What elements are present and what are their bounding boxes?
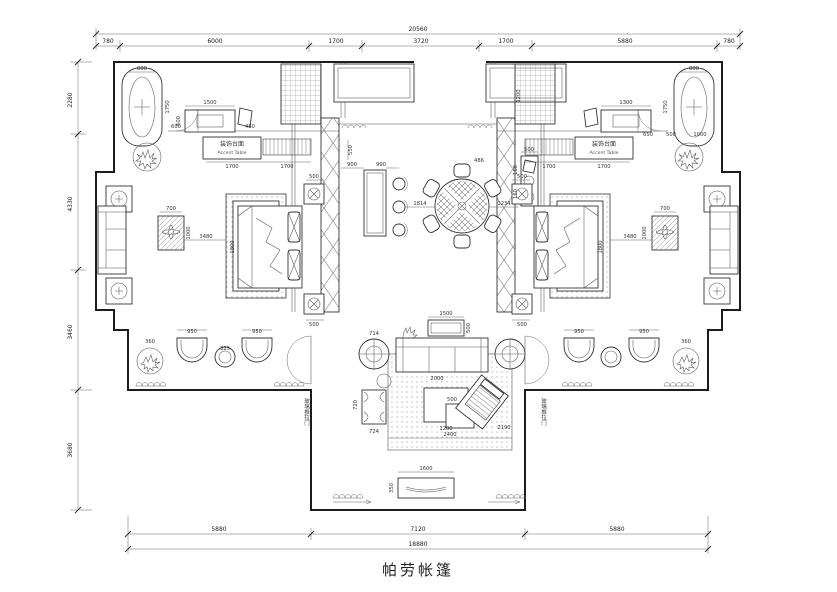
radiator-hall-top bbox=[342, 125, 492, 128]
armchair-right-1 bbox=[564, 338, 594, 362]
radiator-left-room bbox=[136, 383, 304, 386]
svg-text:1814: 1814 bbox=[413, 201, 427, 207]
svg-text:700: 700 bbox=[660, 206, 670, 212]
sliding-door-label-right: 玻璃推拉门 bbox=[540, 397, 547, 427]
bathtub-left bbox=[122, 68, 162, 146]
svg-text:1700: 1700 bbox=[597, 164, 610, 170]
top-closet-left bbox=[334, 64, 414, 102]
double-door-right bbox=[525, 336, 549, 384]
side-table-right bbox=[601, 347, 621, 367]
svg-text:3460: 3460 bbox=[67, 324, 74, 339]
svg-text:Accent Table: Accent Table bbox=[590, 150, 619, 156]
svg-text:1000: 1000 bbox=[186, 226, 192, 239]
svg-text:720: 720 bbox=[353, 400, 359, 410]
armchair-right-2 bbox=[629, 338, 659, 362]
svg-text:1700: 1700 bbox=[542, 164, 555, 170]
nightstand-left-bottom bbox=[304, 294, 324, 314]
end-table-left bbox=[359, 339, 389, 369]
svg-text:500: 500 bbox=[309, 322, 319, 328]
svg-text:780: 780 bbox=[102, 38, 114, 45]
coffee-table-right bbox=[652, 216, 678, 250]
drawing-title: 帕劳帐篷 bbox=[382, 561, 454, 579]
lattice-screen-left bbox=[321, 118, 339, 312]
svg-text:1800: 1800 bbox=[230, 240, 236, 253]
svg-text:500: 500 bbox=[666, 132, 676, 138]
plant-right-bottom bbox=[673, 348, 699, 374]
svg-text:950: 950 bbox=[639, 329, 649, 335]
svg-text:1500: 1500 bbox=[439, 311, 452, 317]
svg-text:Accent Table: Accent Table bbox=[218, 150, 247, 156]
svg-text:990: 990 bbox=[376, 162, 386, 168]
svg-text:1500: 1500 bbox=[203, 100, 216, 106]
svg-text:500: 500 bbox=[524, 147, 534, 153]
radiator-bottom-left bbox=[333, 495, 371, 504]
svg-text:3680: 3680 bbox=[67, 442, 74, 457]
bar-counter bbox=[364, 170, 386, 236]
svg-text:2000: 2000 bbox=[430, 376, 443, 382]
svg-text:5880: 5880 bbox=[609, 526, 624, 533]
radiator-bottom-right bbox=[488, 495, 526, 504]
dimension-chain-top: 20560 780 6000 1700 3720 1700 5880 780 bbox=[93, 26, 743, 52]
svg-text:500: 500 bbox=[517, 322, 527, 328]
svg-text:700: 700 bbox=[166, 206, 176, 212]
tv-console bbox=[398, 478, 454, 498]
svg-text:1700: 1700 bbox=[280, 164, 293, 170]
svg-text:1700: 1700 bbox=[328, 38, 343, 45]
plant-left-top bbox=[133, 143, 161, 171]
armchair-left-2 bbox=[242, 338, 272, 362]
coffee-table-left bbox=[158, 216, 184, 250]
svg-text:900: 900 bbox=[347, 162, 357, 168]
svg-text:1234: 1234 bbox=[497, 201, 511, 207]
wall-fixture-right-2 bbox=[704, 278, 730, 304]
dining-table bbox=[430, 174, 494, 238]
sliding-door-label-left: 玻璃推拉门 bbox=[303, 397, 310, 427]
svg-text:486: 486 bbox=[474, 158, 484, 164]
bench-stool bbox=[362, 374, 391, 424]
svg-text:20560: 20560 bbox=[408, 26, 427, 33]
armchair-left-1 bbox=[177, 338, 207, 362]
svg-text:7120: 7120 bbox=[410, 526, 425, 533]
svg-text:360: 360 bbox=[145, 339, 155, 345]
svg-text:1000: 1000 bbox=[642, 226, 648, 239]
svg-text:950: 950 bbox=[252, 329, 262, 335]
sofa-left-wing bbox=[98, 206, 126, 274]
svg-text:450: 450 bbox=[245, 124, 255, 130]
svg-text:3480: 3480 bbox=[199, 234, 212, 240]
plant-right-top bbox=[675, 143, 703, 171]
wall-fixture-left-2 bbox=[106, 278, 132, 304]
svg-text:350: 350 bbox=[389, 483, 395, 493]
svg-text:950: 950 bbox=[574, 329, 584, 335]
bed-left bbox=[226, 194, 302, 298]
sofa-right-wing bbox=[710, 206, 738, 274]
svg-text:5880: 5880 bbox=[617, 38, 632, 45]
svg-text:装饰台面: 装饰台面 bbox=[592, 140, 616, 148]
svg-text:3720: 3720 bbox=[413, 38, 428, 45]
svg-text:1000: 1000 bbox=[693, 132, 706, 138]
svg-text:650: 650 bbox=[643, 132, 653, 138]
svg-text:1200: 1200 bbox=[516, 89, 522, 102]
svg-text:550: 550 bbox=[348, 145, 354, 155]
svg-text:500: 500 bbox=[447, 397, 457, 403]
svg-text:18880: 18880 bbox=[408, 541, 427, 548]
svg-text:500: 500 bbox=[517, 174, 527, 180]
svg-text:2400: 2400 bbox=[443, 432, 456, 438]
svg-text:5880: 5880 bbox=[211, 526, 226, 533]
console-behind-sofa bbox=[428, 320, 464, 336]
svg-text:600: 600 bbox=[171, 124, 181, 130]
sofa-living bbox=[396, 338, 488, 372]
svg-text:714: 714 bbox=[369, 331, 380, 337]
radiator-right-room bbox=[562, 383, 694, 386]
svg-text:1800: 1800 bbox=[598, 240, 604, 253]
double-door-left bbox=[287, 336, 311, 384]
svg-text:724: 724 bbox=[369, 429, 380, 435]
svg-text:325: 325 bbox=[220, 346, 230, 352]
floor-plan-sheet: 装饰台面 Accent Table bbox=[0, 0, 837, 592]
svg-text:950: 950 bbox=[187, 329, 197, 335]
svg-text:800: 800 bbox=[689, 66, 699, 72]
dimension-chain-left: 2280 4330 3460 3680 bbox=[67, 59, 92, 513]
end-table-right bbox=[495, 339, 525, 369]
floor-plan-drawing: 装饰台面 Accent Table bbox=[0, 0, 837, 592]
svg-text:2190: 2190 bbox=[497, 425, 510, 431]
svg-text:800: 800 bbox=[137, 66, 147, 72]
nightstand-right-bottom bbox=[512, 294, 532, 314]
svg-text:500: 500 bbox=[466, 323, 472, 333]
svg-text:780: 780 bbox=[723, 38, 735, 45]
dimension-chain-bottom: 5880 7120 5880 18880 bbox=[125, 516, 711, 554]
svg-text:1600: 1600 bbox=[419, 466, 432, 472]
svg-text:1300: 1300 bbox=[619, 100, 632, 106]
svg-text:500: 500 bbox=[309, 174, 319, 180]
shower-left bbox=[281, 64, 321, 124]
svg-text:1700: 1700 bbox=[498, 38, 513, 45]
svg-text:360: 360 bbox=[681, 339, 691, 345]
svg-text:3480: 3480 bbox=[623, 234, 636, 240]
svg-text:4330: 4330 bbox=[67, 196, 74, 211]
nightstand-left-top bbox=[304, 184, 324, 204]
svg-text:1750: 1750 bbox=[663, 100, 669, 113]
svg-text:160: 160 bbox=[513, 189, 519, 199]
svg-text:6000: 6000 bbox=[207, 38, 222, 45]
svg-text:1750: 1750 bbox=[165, 100, 171, 113]
svg-text:1700: 1700 bbox=[225, 164, 238, 170]
svg-text:装饰台面: 装饰台面 bbox=[220, 140, 244, 148]
lattice-screen-right bbox=[497, 118, 515, 312]
plant-left-bottom bbox=[137, 348, 163, 374]
svg-text:2280: 2280 bbox=[67, 92, 74, 107]
